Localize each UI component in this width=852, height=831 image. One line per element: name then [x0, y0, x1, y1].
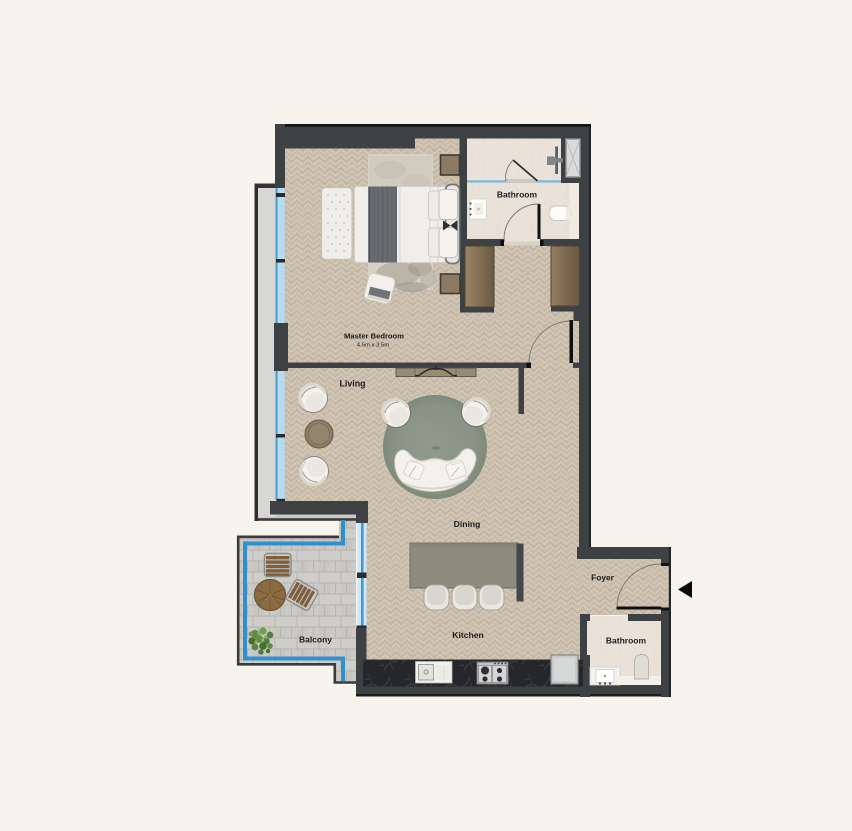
svg-text:4.5m x 3.5m: 4.5m x 3.5m [357, 343, 390, 349]
svg-text:Dining: Dining [454, 519, 481, 529]
svg-text:Kitchen: Kitchen [452, 630, 484, 640]
svg-text:Bathroom: Bathroom [606, 636, 647, 646]
svg-text:Foyer: Foyer [591, 573, 615, 583]
svg-text:Master Bedroom: Master Bedroom [344, 332, 404, 341]
svg-text:Bathroom: Bathroom [497, 190, 538, 200]
svg-text:Balcony: Balcony [299, 635, 332, 645]
svg-text:Living: Living [340, 379, 366, 389]
